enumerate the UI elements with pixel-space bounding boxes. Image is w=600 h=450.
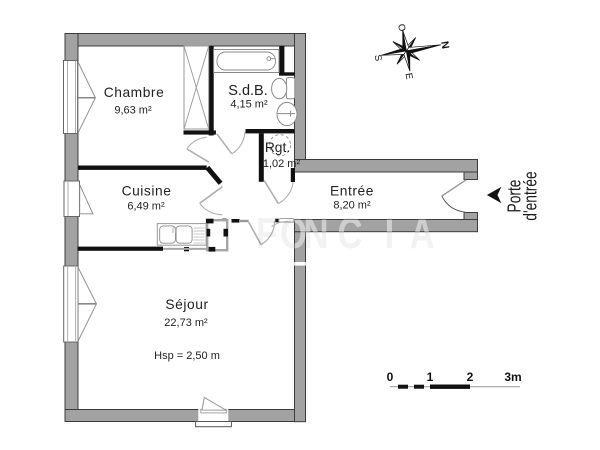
svg-text:0: 0 — [387, 370, 394, 384]
svg-text:Rgt.: Rgt. — [265, 140, 290, 155]
svg-text:Entrée: Entrée — [330, 184, 374, 199]
svg-text:Chambre: Chambre — [104, 85, 165, 100]
svg-text:22,73 m²: 22,73 m² — [164, 317, 208, 329]
svg-text:3m: 3m — [504, 370, 521, 384]
svg-text:Cuisine: Cuisine — [122, 184, 172, 199]
svg-text:1: 1 — [427, 370, 434, 384]
svg-text:Hsp = 2,50 m: Hsp = 2,50 m — [154, 350, 220, 362]
svg-text:6,49 m²: 6,49 m² — [127, 201, 165, 213]
svg-text:Séjour: Séjour — [165, 297, 208, 312]
svg-text:4,15 m²: 4,15 m² — [230, 99, 268, 111]
svg-text:d'entrée: d'entrée — [521, 171, 541, 220]
svg-text:9,63 m²: 9,63 m² — [114, 105, 152, 117]
svg-text:1,02 m²: 1,02 m² — [263, 158, 301, 170]
svg-text:2: 2 — [467, 370, 474, 384]
svg-text:S.d.B.: S.d.B. — [228, 83, 268, 99]
